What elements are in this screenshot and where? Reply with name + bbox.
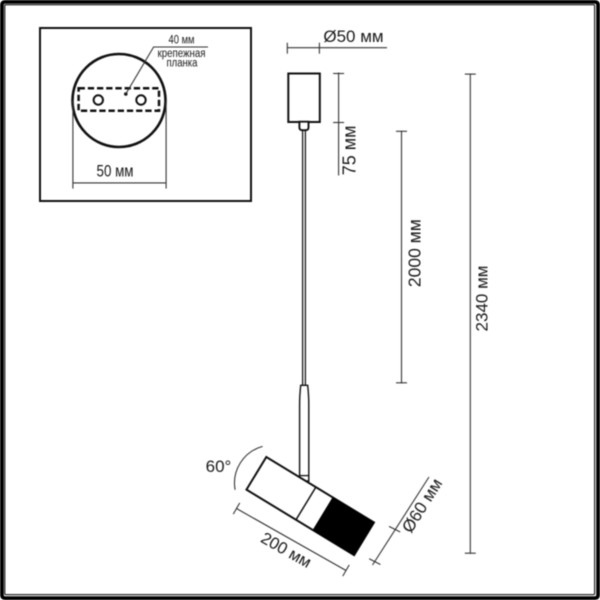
svg-text:2000 мм: 2000 мм xyxy=(405,219,425,287)
svg-text:Ø50 мм: Ø50 мм xyxy=(323,27,383,46)
svg-text:40 мм: 40 мм xyxy=(169,35,195,47)
svg-text:50 мм: 50 мм xyxy=(97,162,134,181)
svg-text:планка: планка xyxy=(167,58,198,70)
svg-text:75 мм: 75 мм xyxy=(340,126,360,176)
svg-text:2340 мм: 2340 мм xyxy=(473,266,492,332)
svg-text:60°: 60° xyxy=(206,457,232,476)
